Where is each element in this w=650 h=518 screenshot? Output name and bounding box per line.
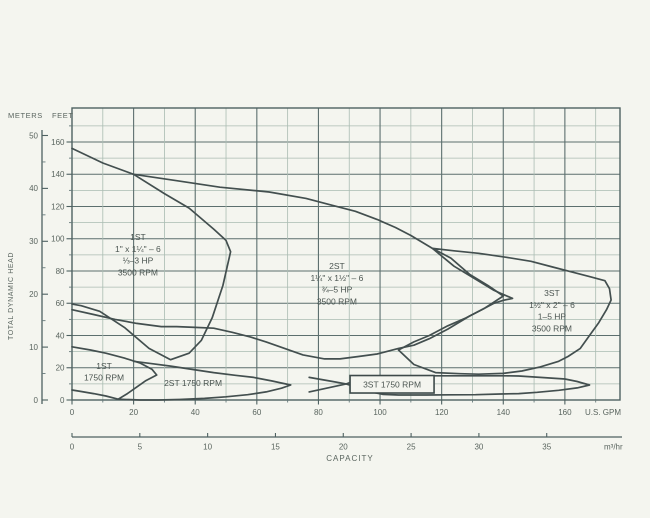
grid: [72, 108, 620, 400]
label-line: 1" x 1¼" – 6: [115, 244, 161, 254]
feet-tick-label: 40: [56, 331, 65, 340]
m3hr-tick-label: 15: [271, 443, 280, 452]
envelope-3st-1750-notch: [309, 377, 346, 392]
y-axis-label: TOTAL DYNAMIC HEAD: [8, 252, 15, 340]
meters-tick-label: 50: [29, 131, 38, 140]
label-line: 1ST: [96, 361, 112, 371]
meters-tick-label: 30: [29, 237, 38, 246]
label-line: 3500 RPM: [532, 323, 572, 333]
label-1st-1750: 1ST1750 RPM: [84, 361, 124, 383]
label-line: 1ST: [130, 232, 146, 242]
plot-frame: [72, 108, 620, 400]
m3hr-unit-label: m³/hr: [604, 443, 623, 452]
envelope-3st-3500: [399, 248, 612, 374]
label-2st-1750: 2ST 1750 RPM: [164, 378, 222, 388]
feet-tick-label: 20: [56, 364, 65, 373]
label-line: 1–5 HP: [538, 312, 567, 322]
meters-tick-label: 0: [34, 396, 39, 405]
feet-tick-label: 0: [60, 396, 65, 405]
gpm-tick-label: 20: [129, 408, 138, 417]
gpm-tick-label: 80: [314, 408, 323, 417]
gpm-tick-label: 100: [373, 408, 387, 417]
m3hr-tick-label: 10: [203, 443, 212, 452]
label-line: ⅓–3 HP: [123, 256, 154, 266]
x-axis-label: CAPACITY: [326, 454, 373, 463]
meters-tick-label: 40: [29, 184, 38, 193]
gpm-tick-label: 160: [558, 408, 572, 417]
feet-tick-label: 140: [51, 170, 65, 179]
gpm-tick-label: 60: [252, 408, 261, 417]
label-3st-3500: 3ST1½" x 2" – 61–5 HP3500 RPM: [529, 288, 575, 333]
meters-axis-title: METERS: [8, 111, 43, 120]
meters-tick-label: 10: [29, 343, 38, 352]
label-line: 1¼" x 1½" – 6: [311, 273, 364, 283]
m3hr-tick-label: 0: [70, 443, 75, 452]
gpm-tick-label: 120: [435, 408, 449, 417]
label-line: 2ST: [329, 261, 345, 271]
pump-performance-chart: 2040608010012014016000102030405002040608…: [0, 0, 650, 518]
gpm-tick-label: 0: [70, 408, 75, 417]
feet-axis-title: FEET: [52, 111, 74, 120]
feet-tick-label: 160: [51, 138, 65, 147]
feet-tick-label: 80: [56, 267, 65, 276]
label-line: 3ST 1750 RPM: [363, 379, 421, 389]
meters-tick-label: 20: [29, 290, 38, 299]
m3hr-tick-label: 30: [474, 443, 483, 452]
label-line: 3500 RPM: [118, 267, 158, 277]
label-line: 3ST: [544, 288, 560, 298]
feet-tick-label: 60: [56, 299, 65, 308]
gpm-unit-label: U.S. GPM: [585, 408, 621, 417]
gpm-tick-label: 40: [191, 408, 200, 417]
gpm-tick-label: 140: [497, 408, 511, 417]
label-line: 1750 RPM: [84, 373, 124, 383]
label-line: 3500 RPM: [317, 296, 357, 306]
m3hr-tick-label: 20: [339, 443, 348, 452]
feet-tick-label: 100: [51, 235, 65, 244]
label-line: ¾–5 HP: [322, 285, 353, 295]
m3hr-tick-label: 35: [542, 443, 551, 452]
pump-performance-chart-page: 2040608010012014016000102030405002040608…: [0, 0, 650, 518]
label-3st-1750: 3ST 1750 RPM: [363, 379, 421, 389]
m3hr-tick-label: 5: [138, 443, 143, 452]
feet-tick-label: 120: [51, 202, 65, 211]
m3hr-tick-label: 25: [407, 443, 416, 452]
label-line: 1½" x 2" – 6: [529, 300, 575, 310]
label-line: 2ST 1750 RPM: [164, 378, 222, 388]
